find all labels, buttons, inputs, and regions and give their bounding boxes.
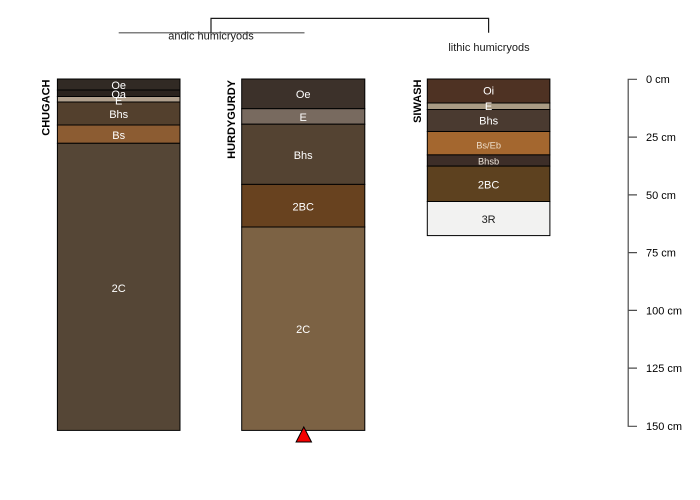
svg-text:2BC: 2BC [478,180,499,192]
svg-text:Bhs: Bhs [294,150,313,162]
svg-text:2C: 2C [112,283,126,295]
svg-text:Oi: Oi [483,86,494,98]
svg-text:Bhs: Bhs [109,109,128,121]
svg-text:50 cm: 50 cm [646,190,676,202]
svg-text:Bs/Eb: Bs/Eb [476,140,501,150]
svg-text:25 cm: 25 cm [646,132,676,144]
svg-text:Bs: Bs [112,130,125,142]
svg-text:2BC: 2BC [292,201,313,213]
svg-text:3R: 3R [482,214,496,226]
svg-text:E: E [485,101,492,113]
svg-text:Bhsb: Bhsb [478,156,499,166]
svg-text:E: E [300,112,307,124]
svg-text:andic humicryods: andic humicryods [168,30,254,42]
svg-text:SIWASH: SIWASH [412,79,424,122]
svg-text:75 cm: 75 cm [646,248,676,260]
svg-text:0 cm: 0 cm [646,74,670,86]
svg-text:125 cm: 125 cm [646,363,682,375]
svg-text:Oe: Oe [296,89,311,101]
svg-text:100 cm: 100 cm [646,305,682,317]
svg-text:150 cm: 150 cm [646,421,682,433]
svg-text:CHUGACH: CHUGACH [41,79,53,135]
svg-text:lithic humicryods: lithic humicryods [448,42,530,54]
svg-text:HURDYGURDY: HURDYGURDY [226,79,238,159]
svg-text:Bhs: Bhs [479,116,498,128]
svg-text:E: E [115,95,122,107]
svg-text:2C: 2C [296,324,310,336]
